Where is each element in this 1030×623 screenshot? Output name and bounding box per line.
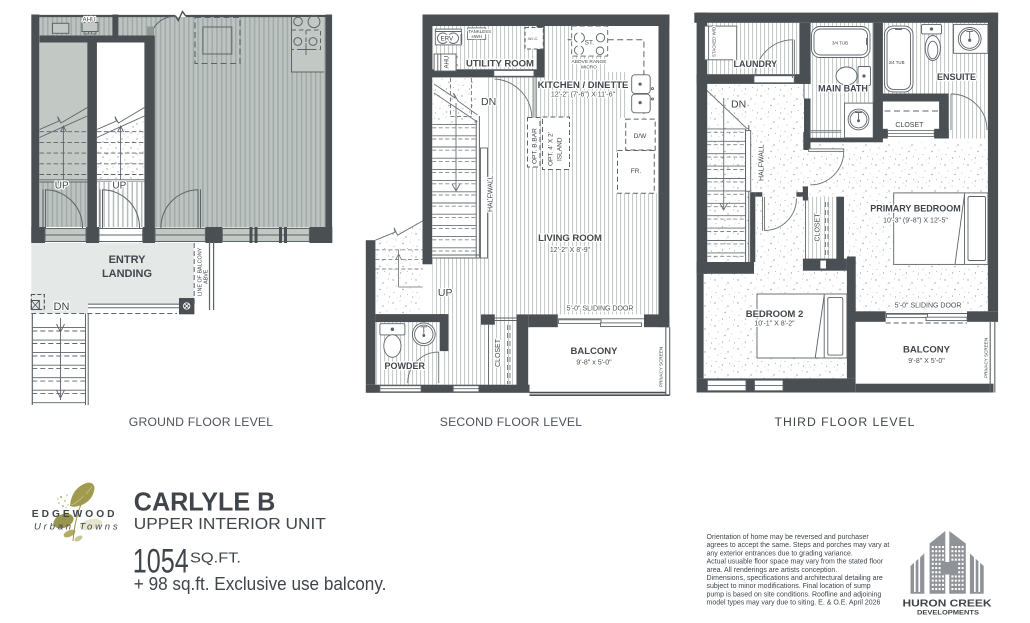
svg-text:ABVE: ABVE xyxy=(204,269,210,284)
svg-text:KITCHEN / DINETTE: KITCHEN / DINETTE xyxy=(538,80,629,91)
svg-text:12'-2" (7'-6") X 11'-6": 12'-2" (7'-6") X 11'-6" xyxy=(551,91,616,98)
svg-text:DN: DN xyxy=(731,99,746,111)
svg-text:9'-8" x 5'-0": 9'-8" x 5'-0" xyxy=(576,360,612,367)
svg-text:SECOND FLOOR LEVEL: SECOND FLOOR LEVEL xyxy=(440,415,582,429)
svg-text:EDGEWOOD: EDGEWOOD xyxy=(32,509,118,520)
svg-text:area. All renderings are artis: area. All renderings are artists concept… xyxy=(707,567,838,574)
svg-text:HALFWALL: HALFWALL xyxy=(488,175,495,212)
svg-text:Dimensions, specifications and: Dimensions, specifications and architect… xyxy=(707,575,883,582)
svg-text:CARLYLE B: CARLYLE B xyxy=(134,486,275,516)
svg-text:D/W: D/W xyxy=(634,133,648,140)
svg-text:DN: DN xyxy=(54,301,70,313)
svg-text:HALFWALL: HALFWALL xyxy=(759,144,766,181)
svg-text:subject to minor modifications: subject to minor modifications. Final lo… xyxy=(707,583,871,590)
svg-text:UP: UP xyxy=(55,181,69,192)
svg-text:3/4 TUB: 3/4 TUB xyxy=(889,60,905,65)
svg-text:3/4 TUB: 3/4 TUB xyxy=(832,41,848,46)
svg-text:OPT. 4' X 2': OPT. 4' X 2' xyxy=(548,132,555,166)
svg-text:12'-2" X 8'-9": 12'-2" X 8'-9" xyxy=(550,247,591,254)
svg-text:agrees to accept the same. Ste: agrees to accept the same. Steps and por… xyxy=(707,542,890,549)
svg-text:+ 98 sq.ft. Exclusive use balc: + 98 sq.ft. Exclusive use balcony. xyxy=(134,573,387,594)
svg-text:10'-3" (9'-8") X 12'-5": 10'-3" (9'-8") X 12'-5" xyxy=(883,218,948,225)
svg-text:ABOVE RANGE: ABOVE RANGE xyxy=(572,59,607,65)
svg-text:AHU: AHU xyxy=(445,56,451,69)
svg-text:MICRO: MICRO xyxy=(581,65,597,71)
svg-text:AHU: AHU xyxy=(83,17,96,24)
svg-text:OPT. B.BAR: OPT. B.BAR xyxy=(532,128,539,164)
svg-text:UP: UP xyxy=(438,287,453,299)
svg-text:CLOSET: CLOSET xyxy=(815,213,822,242)
svg-text:pump is based on site conditio: pump is based on site conditions. Roofli… xyxy=(707,591,882,598)
svg-text:DEVELOPMENTS: DEVELOPMENTS xyxy=(917,610,980,617)
svg-text:LIVING ROOM: LIVING ROOM xyxy=(538,233,602,244)
svg-text:LAUNDRY: LAUNDRY xyxy=(734,59,778,69)
svg-text:ENSUITE: ENSUITE xyxy=(937,72,976,82)
svg-text:5'-0" SLIDING DOOR: 5'-0" SLIDING DOOR xyxy=(895,303,962,310)
svg-text:UP: UP xyxy=(112,181,126,192)
svg-text:THIRD FLOOR LEVEL: THIRD FLOOR LEVEL xyxy=(775,415,916,429)
svg-text:Urban Towns: Urban Towns xyxy=(34,522,120,533)
svg-text:5'-0" SLIDING DOOR: 5'-0" SLIDING DOOR xyxy=(567,306,634,313)
svg-text:W.I.C.: W.I.C. xyxy=(528,37,538,41)
svg-text:BALCONY: BALCONY xyxy=(903,345,951,356)
svg-text:PRIVACY SCREEN: PRIVACY SCREEN xyxy=(984,338,989,378)
svg-text:POWDER: POWDER xyxy=(385,361,426,371)
svg-text:ISLAND: ISLAND xyxy=(557,137,564,161)
svg-text:any exterior entrances due to: any exterior entrances due to grading va… xyxy=(707,550,853,557)
svg-text:10'-1" X 8'-2": 10'-1" X 8'-2" xyxy=(754,321,795,328)
svg-text:FR.: FR. xyxy=(631,168,642,175)
svg-text:HWH: HWH xyxy=(472,34,483,39)
svg-text:STACKED W/D: STACKED W/D xyxy=(712,27,717,57)
svg-text:ENTRY: ENTRY xyxy=(109,254,147,266)
svg-text:UPPER INTERIOR UNIT: UPPER INTERIOR UNIT xyxy=(134,516,327,533)
svg-text:9'-8" X 5'-0": 9'-8" X 5'-0" xyxy=(908,358,945,365)
svg-text:CLOSET: CLOSET xyxy=(495,338,502,367)
svg-text:MAIN BATH: MAIN BATH xyxy=(818,84,868,94)
svg-text:SQ.FT.: SQ.FT. xyxy=(190,550,241,566)
svg-text:HURON CREEK: HURON CREEK xyxy=(903,599,993,610)
svg-text:PRIVACY SCREEN: PRIVACY SCREEN xyxy=(659,347,664,387)
svg-text:Actual usuable floor space may: Actual usuable floor space may vary from… xyxy=(707,559,884,566)
svg-text:BALCONY: BALCONY xyxy=(571,346,619,357)
svg-text:CLOSET: CLOSET xyxy=(895,122,924,129)
svg-text:PRIMARY BEDROOM: PRIMARY BEDROOM xyxy=(870,204,961,214)
svg-text:LANDING: LANDING xyxy=(102,268,152,280)
svg-text:BEDROOM 2: BEDROOM 2 xyxy=(746,309,804,320)
svg-text:UTILITY ROOM: UTILITY ROOM xyxy=(466,58,534,69)
svg-text:model types may vary due to si: model types may vary due to siting. E. &… xyxy=(707,600,881,607)
svg-text:Orientation of home may be rev: Orientation of home may be reversed and … xyxy=(707,534,870,541)
svg-text:ST.: ST. xyxy=(585,39,594,46)
svg-text:GROUND FLOOR LEVEL: GROUND FLOOR LEVEL xyxy=(129,415,273,429)
svg-text:ERV: ERV xyxy=(441,36,454,43)
svg-text:DN: DN xyxy=(481,96,496,108)
